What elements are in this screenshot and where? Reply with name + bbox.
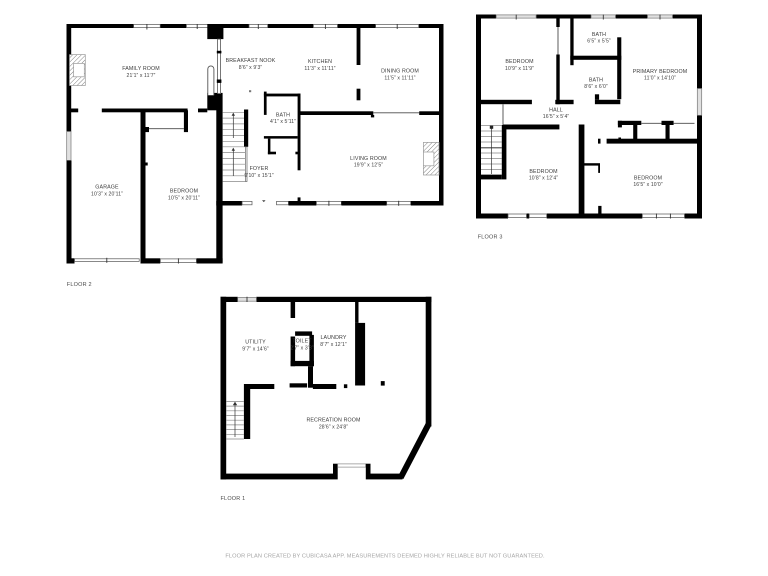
svg-text:9’7” x 14’6”: 9’7” x 14’6”: [242, 347, 269, 353]
svg-text:10’5” x 20’11”: 10’5” x 20’11”: [168, 196, 200, 202]
svg-text:FOYER: FOYER: [250, 166, 269, 172]
svg-text:BEDROOM: BEDROOM: [505, 59, 533, 65]
svg-text:DINING ROOM: DINING ROOM: [381, 69, 419, 75]
svg-text:KITCHEN: KITCHEN: [308, 59, 332, 65]
svg-text:UTILITY: UTILITY: [245, 340, 266, 346]
svg-text:4’1” x 5’11”: 4’1” x 5’11”: [270, 119, 296, 125]
svg-text:FLOOR PLAN CREATED BY CUBICASA: FLOOR PLAN CREATED BY CUBICASA APP. MEAS…: [225, 554, 545, 560]
svg-text:LIVING ROOM: LIVING ROOM: [350, 156, 387, 162]
svg-text:BEDROOM: BEDROOM: [170, 189, 198, 195]
svg-text:FLOOR 2: FLOOR 2: [67, 282, 92, 288]
svg-text:8’7” x 12’1”: 8’7” x 12’1”: [320, 342, 347, 348]
svg-text:16’5” x 5’4”: 16’5” x 5’4”: [543, 114, 570, 120]
svg-text:11’0” x 14’10”: 11’0” x 14’10”: [644, 76, 676, 82]
svg-text:10’3” x 20’11”: 10’3” x 20’11”: [91, 191, 123, 197]
svg-text:BATH: BATH: [589, 77, 603, 83]
svg-text:FAMILY ROOM: FAMILY ROOM: [122, 66, 160, 72]
svg-text:BATH: BATH: [592, 32, 606, 38]
svg-text:LAUNDRY: LAUNDRY: [320, 335, 346, 341]
svg-text:6’5” x 5’5”: 6’5” x 5’5”: [587, 39, 611, 45]
svg-text:10’9” x 11’9”: 10’9” x 11’9”: [505, 66, 534, 72]
svg-text:RECREATION ROOM: RECREATION ROOM: [306, 418, 360, 424]
svg-text:BEDROOM: BEDROOM: [634, 176, 662, 182]
svg-text:2’7” x 3’3”: 2’7” x 3’3”: [290, 346, 314, 352]
svg-text:16’5” x 10’0”: 16’5” x 10’0”: [633, 182, 663, 188]
svg-text:9’10” x 15’1”: 9’10” x 15’1”: [244, 173, 274, 179]
svg-text:BEDROOM: BEDROOM: [529, 169, 557, 175]
svg-text:PRIMARY BEDROOM: PRIMARY BEDROOM: [633, 69, 688, 75]
svg-text:HALL: HALL: [549, 107, 563, 113]
svg-text:11’3” x 11’11”: 11’3” x 11’11”: [304, 66, 335, 72]
svg-text:28’6” x 24’8”: 28’6” x 24’8”: [319, 425, 349, 431]
svg-text:10’8” x 12’4”: 10’8” x 12’4”: [529, 176, 559, 182]
svg-text:FLOOR 1: FLOOR 1: [221, 496, 246, 502]
svg-text:BATH: BATH: [276, 112, 290, 118]
svg-text:11’5” x 11’11”: 11’5” x 11’11”: [384, 75, 415, 81]
svg-text:19’9” x 12’5”: 19’9” x 12’5”: [354, 163, 384, 169]
svg-text:GARAGE: GARAGE: [95, 184, 119, 190]
svg-text:TOILET: TOILET: [292, 339, 312, 345]
svg-text:21’1” x 11’7”: 21’1” x 11’7”: [127, 73, 156, 79]
svg-text:8’6” x 6’0”: 8’6” x 6’0”: [584, 84, 608, 90]
svg-text:BREAKFAST NOOK: BREAKFAST NOOK: [226, 58, 276, 64]
svg-text:FLOOR 3: FLOOR 3: [478, 235, 503, 241]
svg-text:8’6” x 9’3”: 8’6” x 9’3”: [239, 65, 263, 71]
